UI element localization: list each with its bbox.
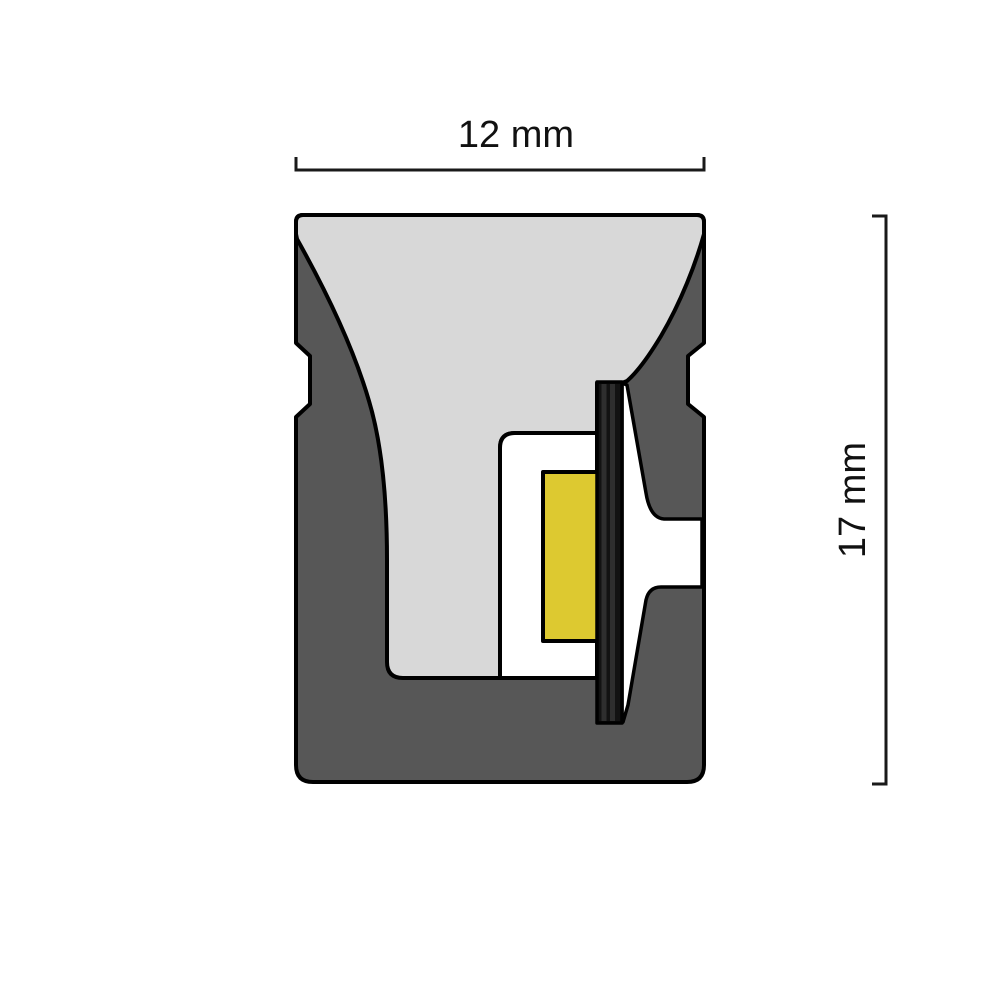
width-dimension-bracket	[296, 157, 704, 170]
pcb-layer-line-left	[602, 384, 607, 721]
height-dimension: 17 mm	[832, 216, 886, 784]
pcb-layer-line-right	[610, 384, 615, 721]
diagram-canvas: 12 mm 17 mm	[0, 0, 1000, 1000]
height-dimension-bracket	[872, 216, 886, 784]
width-dimension-label: 12 mm	[458, 114, 574, 156]
pcb-board	[597, 382, 622, 723]
pcb-strip	[597, 382, 622, 723]
height-dimension-label: 17 mm	[832, 442, 874, 558]
profile-cross-section-diagram: 12 mm 17 mm	[0, 0, 1000, 1000]
led-chip	[543, 472, 598, 641]
width-dimension: 12 mm	[296, 114, 704, 170]
